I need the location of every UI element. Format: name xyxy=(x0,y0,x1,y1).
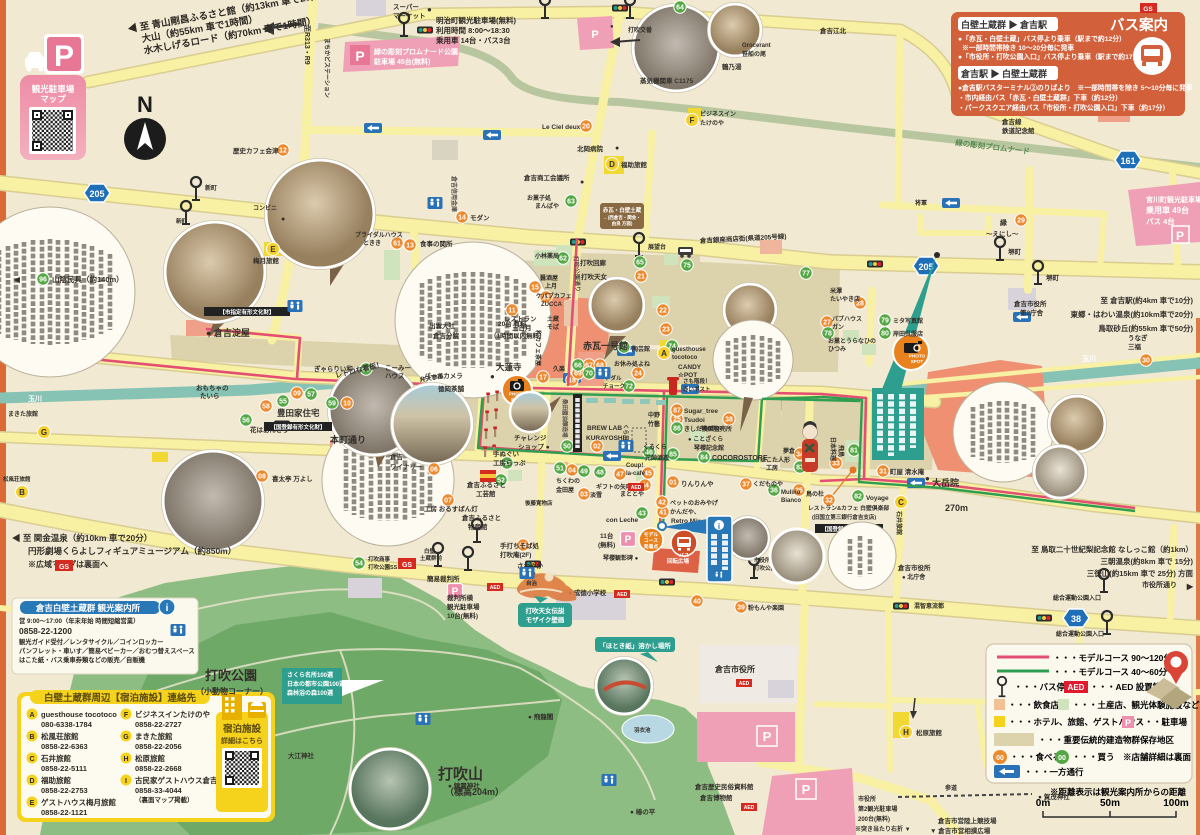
svg-text:喜太亭 万よし: 喜太亭 万よし xyxy=(272,474,313,483)
svg-text:日本の都市公園100選: 日本の都市公園100選 xyxy=(287,680,345,688)
svg-text:0858-22-1200: 0858-22-1200 xyxy=(19,626,72,636)
svg-text:14: 14 xyxy=(458,215,466,222)
svg-text:15: 15 xyxy=(531,285,539,292)
svg-text:11台: 11台 xyxy=(600,531,614,540)
svg-text:古民家ゲストハウス倉吉: 古民家ゲストハウス倉吉 xyxy=(135,775,218,785)
svg-text:醤酒屋: 醤酒屋 xyxy=(540,274,558,282)
svg-text:福助旅館: 福助旅館 xyxy=(620,160,648,169)
svg-text:←(西倉吉・関金・: ←(西倉吉・関金・ xyxy=(603,214,641,221)
svg-text:倉吉市営陸上競技場: 倉吉市営陸上競技場 xyxy=(937,816,997,825)
svg-text:陶芸館: 陶芸館 xyxy=(632,345,650,353)
svg-text:(旧国立第三銀行倉吉支店): (旧国立第三銀行倉吉支店) xyxy=(812,513,876,521)
svg-text:竹藝: 竹藝 xyxy=(647,420,660,428)
svg-text:石井旅館: 石井旅館 xyxy=(40,753,71,763)
svg-text:0858-22-2056: 0858-22-2056 xyxy=(135,742,182,751)
svg-text:10台(無料): 10台(無料) xyxy=(447,611,478,620)
svg-text:33: 33 xyxy=(832,461,840,468)
svg-text:38: 38 xyxy=(725,417,733,424)
svg-text:倉吉江北: 倉吉江北 xyxy=(819,26,847,35)
svg-text:Tsudoi: Tsudoi xyxy=(684,417,705,424)
svg-text:01: 01 xyxy=(669,480,677,487)
svg-text:チョーク: チョーク xyxy=(603,382,625,390)
svg-text:米澤: 米澤 xyxy=(830,287,842,295)
svg-text:スーパー: スーパー xyxy=(393,2,419,11)
svg-text:将軍: 将軍 xyxy=(915,199,927,207)
svg-text:Voyage: Voyage xyxy=(866,495,889,502)
svg-text:57: 57 xyxy=(307,392,315,399)
svg-text:00: 00 xyxy=(996,755,1004,762)
svg-text:乗用車 14台・バス3台: 乗用車 14台・バス3台 xyxy=(436,35,511,45)
svg-text:●: ● xyxy=(580,179,584,186)
svg-text:75: 75 xyxy=(683,263,691,270)
svg-text:● 鎮霊神社: ● 鎮霊神社 xyxy=(448,781,480,790)
svg-text:20: 20 xyxy=(582,124,590,131)
svg-text:簡易裁判所: 簡易裁判所 xyxy=(426,574,460,583)
svg-text:51: 51 xyxy=(556,466,564,473)
svg-text:43: 43 xyxy=(638,511,646,518)
svg-text:13: 13 xyxy=(406,243,414,250)
svg-text:日本料理: 日本料理 xyxy=(829,437,837,461)
svg-text:100m: 100m xyxy=(1163,798,1189,809)
svg-text:96: 96 xyxy=(39,277,47,284)
svg-text:至 倉吉駅(約4km 車で10分): 至 倉吉駅(約4km 車で10分) xyxy=(1100,295,1193,305)
svg-text:080-6338-1784: 080-6338-1784 xyxy=(41,720,93,729)
svg-text:AED: AED xyxy=(739,681,750,687)
svg-text:11: 11 xyxy=(508,308,516,315)
svg-text:展望台: 展望台 xyxy=(648,243,666,251)
svg-text:笹船の尾: 笹船の尾 xyxy=(741,50,766,58)
svg-text:P: P xyxy=(802,782,811,797)
svg-text:47: 47 xyxy=(616,472,624,479)
svg-text:29: 29 xyxy=(1017,218,1025,225)
svg-text:かんだや、: かんだや、 xyxy=(670,508,700,516)
svg-text:04: 04 xyxy=(568,468,576,475)
svg-text:0858-22-2727: 0858-22-2727 xyxy=(135,720,182,729)
svg-text:D: D xyxy=(29,778,34,785)
svg-text:82: 82 xyxy=(854,494,862,501)
svg-text:AED: AED xyxy=(490,585,501,591)
svg-text:Bianco: Bianco xyxy=(781,498,801,504)
svg-text:本町通り: 本町通り xyxy=(330,434,366,445)
svg-text:D: D xyxy=(609,160,615,169)
svg-text:ハウス: ハウス xyxy=(385,372,405,380)
svg-text:62: 62 xyxy=(559,256,567,263)
svg-text:（小動物コーナー）: （小動物コーナー） xyxy=(196,686,268,696)
svg-text:23: 23 xyxy=(662,327,670,334)
svg-text:● 椿の平: ● 椿の平 xyxy=(630,807,656,816)
svg-text:レストラン&カフェ 白壁倶楽部: レストラン&カフェ 白壁倶楽部 xyxy=(808,504,889,512)
svg-text:「ほとき紙」溶かし場所: 「ほとき紙」溶かし場所 xyxy=(599,641,671,650)
svg-text:おもちゃの: おもちゃの xyxy=(196,383,229,392)
svg-text:バス 4台: バス 4台 xyxy=(1146,216,1175,226)
svg-text:41: 41 xyxy=(659,510,667,517)
svg-text:パンフレット・車いす／簡易ベビーカー／おむつ替えスペース: パンフレット・車いす／簡易ベビーカー／おむつ替えスペース xyxy=(19,646,195,655)
svg-text:06: 06 xyxy=(430,467,438,474)
svg-text:70: 70 xyxy=(585,371,593,378)
svg-text:H: H xyxy=(123,756,128,763)
svg-text:第2庁舎: 第2庁舎 xyxy=(1020,308,1044,317)
svg-text:※距離表示は観光案内所からの距離: ※距離表示は観光案内所からの距離 xyxy=(1050,787,1187,797)
svg-text:たいら: たいら xyxy=(200,392,220,400)
svg-text:倉吉市役所: 倉吉市役所 xyxy=(714,664,755,674)
svg-text:22: 22 xyxy=(659,308,667,315)
svg-text:第2観光駐車場: 第2観光駐車場 xyxy=(857,805,897,813)
svg-text:78: 78 xyxy=(824,331,832,338)
svg-text:久楽: 久楽 xyxy=(553,365,566,373)
svg-text:山陰民具（約140m）: 山陰民具（約140m） xyxy=(52,274,124,284)
svg-text:i: i xyxy=(718,522,720,531)
svg-text:三朝温泉(約8km 車で 15分): 三朝温泉(約8km 車で 15分) xyxy=(1100,556,1193,566)
svg-text:24: 24 xyxy=(634,371,642,378)
svg-text:10: 10 xyxy=(343,401,351,408)
svg-text:86: 86 xyxy=(673,426,681,433)
svg-text:歴史カフェ会津: 歴史カフェ会津 xyxy=(233,146,279,155)
svg-text:54: 54 xyxy=(355,561,363,568)
svg-text:コース: コース xyxy=(644,538,658,544)
svg-text:上月: 上月 xyxy=(545,282,557,290)
svg-text:58: 58 xyxy=(262,404,270,411)
svg-text:まきた旅館: まきた旅館 xyxy=(135,731,173,741)
svg-text:Coup!: Coup! xyxy=(626,463,643,469)
svg-text:CANDY: CANDY xyxy=(678,364,702,371)
svg-text:くだものや: くだものや xyxy=(753,480,783,488)
svg-text:たけのや: たけのや xyxy=(700,119,724,127)
svg-text:87: 87 xyxy=(673,408,681,415)
svg-text:和カフェ茶屋: 和カフェ茶屋 xyxy=(534,329,542,366)
svg-text:まちかどステーション: まちかどステーション xyxy=(323,38,331,98)
svg-text:羽衣池: 羽衣池 xyxy=(634,726,651,734)
svg-text:はこた人形: はこた人形 xyxy=(760,456,790,464)
svg-text:36: 36 xyxy=(770,488,778,495)
svg-text:・・・バス停: ・・・バス停 xyxy=(1014,682,1066,692)
svg-text:●: ● xyxy=(615,145,619,152)
svg-text:発着点: 発着点 xyxy=(643,543,659,550)
svg-text:金田屋: 金田屋 xyxy=(555,486,574,494)
svg-text:バス案内: バス案内 xyxy=(1110,16,1168,34)
svg-text:ひつみ: ひつみ xyxy=(828,346,846,353)
svg-text:粉もんや楽園: 粉もんや楽園 xyxy=(748,604,784,612)
svg-text:21: 21 xyxy=(637,274,645,281)
svg-text:観光ガイド受付／レンタサイクル／コインロッカー: 観光ガイド受付／レンタサイクル／コインロッカー xyxy=(19,637,164,646)
svg-text:倉吉線: 倉吉線 xyxy=(1001,117,1022,126)
svg-text:09: 09 xyxy=(293,391,301,398)
svg-text:倉吉白壁土蔵群 観光案内所: 倉吉白壁土蔵群 観光案内所 xyxy=(35,603,141,613)
svg-text:まきた旅館: まきた旅館 xyxy=(8,410,38,418)
svg-text:鳥取砂丘(約55km 車で50分): 鳥取砂丘(約55km 車で50分) xyxy=(1098,323,1193,333)
svg-text:A: A xyxy=(29,712,34,719)
svg-text:GS: GS xyxy=(59,564,69,571)
svg-text:打吹商事: 打吹商事 xyxy=(368,555,391,563)
svg-text:町屋 清水庵: 町屋 清水庵 xyxy=(890,467,925,476)
svg-text:松風荘旅館: 松風荘旅館 xyxy=(41,731,79,741)
svg-text:BREW LAB: BREW LAB xyxy=(587,425,622,432)
svg-text:i: i xyxy=(166,603,169,614)
svg-text:バス: バス xyxy=(679,552,689,559)
svg-text:●: ● xyxy=(281,216,285,223)
svg-text:●「市役所・打吹公園入口」バス停より乗車（駅まで約17分）: ●「市役所・打吹公園入口」バス停より乗車（駅まで約17分） xyxy=(958,52,1146,61)
svg-text:64: 64 xyxy=(676,5,684,12)
svg-text:三徳山(約15km 車で 25分) 方面: 三徳山(約15km 車で 25分) 方面 xyxy=(1087,568,1194,578)
svg-text:G: G xyxy=(41,428,47,437)
svg-text:打吹山: 打吹山 xyxy=(438,765,483,783)
svg-text:新町: 新町 xyxy=(205,184,217,192)
svg-text:59: 59 xyxy=(328,401,336,408)
svg-text:ショップ ●: ショップ ● xyxy=(518,442,550,451)
svg-text:由良 方面): 由良 方面) xyxy=(612,220,633,227)
svg-text:鉄道記念館: 鉄道記念館 xyxy=(1002,126,1035,135)
svg-text:宮川町観光駐車場(無料): 宮川町観光駐車場(無料) xyxy=(1146,195,1200,204)
svg-text:◀ 至 関金温泉（約10km 車で20分）: ◀ 至 関金温泉（約10km 車で20分） xyxy=(12,533,152,543)
svg-text:AED: AED xyxy=(744,805,755,811)
svg-text:PHOTO: PHOTO xyxy=(909,354,926,359)
svg-text:中野: 中野 xyxy=(648,411,660,419)
svg-text:工芸館: 工芸館 xyxy=(476,489,496,498)
svg-text:北岡病院: 北岡病院 xyxy=(577,144,604,153)
svg-text:手ぬぐい: 手ぬぐい xyxy=(493,449,520,458)
svg-text:N: N xyxy=(137,92,153,117)
svg-text:ペットのおみやげ: ペットのおみやげ xyxy=(670,499,719,507)
svg-text:赤瓦一号館: 赤瓦一号館 xyxy=(583,340,628,351)
svg-text:打吹公園: 打吹公園 xyxy=(205,668,257,683)
svg-text:松風荘旅館: 松風荘旅館 xyxy=(3,475,31,483)
svg-text:きしだ農園直売所: きしだ農園直売所 xyxy=(684,425,732,433)
svg-text:三福: 三福 xyxy=(1128,342,1142,351)
svg-text:Le Ciel deux: Le Ciel deux xyxy=(542,124,581,131)
svg-text:堺町: 堺町 xyxy=(1008,247,1022,256)
svg-text:倉吉ふるさと: 倉吉ふるさと xyxy=(461,513,501,522)
svg-text:H: H xyxy=(903,728,909,737)
svg-text:観光駐車場: 観光駐車場 xyxy=(32,84,75,94)
svg-text:新町: 新町 xyxy=(176,217,188,225)
svg-text:guesthouse tocotoco: guesthouse tocotoco xyxy=(41,710,117,719)
svg-text:0858-22-6363: 0858-22-6363 xyxy=(41,742,88,751)
svg-text:●倉吉駅バスターミナル②のりばより ※一部時間帯を除き 5〜: ●倉吉駅バスターミナル②のりばより ※一部時間帯を除き 5〜10分毎に発車 xyxy=(958,83,1193,92)
svg-text:02: 02 xyxy=(593,444,601,451)
svg-text:08: 08 xyxy=(258,474,266,481)
svg-text:倉吉市役所: 倉吉市役所 xyxy=(1013,299,1047,308)
svg-text:さも階段！: さも階段！ xyxy=(683,377,711,385)
svg-text:49: 49 xyxy=(580,469,588,476)
svg-text:総合運動公園入口: 総合運動公園入口 xyxy=(1053,594,1101,602)
svg-text:17: 17 xyxy=(539,375,547,382)
svg-text:※一部時間帯除き 10〜20分毎に発車: ※一部時間帯除き 10〜20分毎に発車 xyxy=(962,43,1074,52)
svg-text:I: I xyxy=(125,778,127,785)
svg-text:● ことざくら: ● ことざくら xyxy=(688,435,723,443)
svg-text:琴櫻観彰碑 ●: 琴櫻観彰碑 ● xyxy=(602,554,639,562)
svg-text:夢倉: 夢倉 xyxy=(783,447,796,455)
svg-text:モデル: モデル xyxy=(644,531,659,538)
svg-text:G: G xyxy=(123,734,129,741)
svg-text:ミタ写真館: ミタ写真館 xyxy=(893,317,923,325)
svg-text:まととや: まととや xyxy=(620,490,644,498)
svg-text:0858-22-2753: 0858-22-2753 xyxy=(41,786,88,795)
svg-text:B: B xyxy=(29,734,34,741)
svg-text:48: 48 xyxy=(596,470,604,477)
svg-text:回転広場: 回転広場 xyxy=(667,557,690,565)
svg-text:大岳院: 大岳院 xyxy=(932,477,959,488)
svg-text:駐車場 45台(無料): 駐車場 45台(無料) xyxy=(374,57,430,66)
svg-text:85: 85 xyxy=(669,452,677,459)
svg-text:ゲストハウス梅月旅館: ゲストハウス梅月旅館 xyxy=(41,797,116,807)
svg-text:la-cafe: la-cafe xyxy=(626,471,646,477)
svg-text:倉吉商工会議所: 倉吉商工会議所 xyxy=(523,173,570,182)
svg-text:後藤寛物店: 後藤寛物店 xyxy=(525,499,553,507)
svg-text:白壁土蔵群 ▶ 倉吉駅: 白壁土蔵群 ▶ 倉吉駅 xyxy=(961,19,1048,30)
svg-text:Sugar_tree: Sugar_tree xyxy=(684,408,718,415)
svg-text:鶴乃湯: 鶴乃湯 xyxy=(722,62,742,71)
svg-text:マップ: マップ xyxy=(40,94,66,104)
svg-text:● 北庁舎: ● 北庁舎 xyxy=(902,573,926,581)
svg-text:ちくわの: ちくわの xyxy=(556,477,580,485)
svg-text:0858-33-4044: 0858-33-4044 xyxy=(135,786,183,795)
svg-text:淡雪: 淡雪 xyxy=(590,491,602,499)
svg-text:はこた紙・バス乗車券類などの販売／自販機: はこた紙・バス乗車券類などの販売／自販機 xyxy=(19,655,146,664)
svg-text:松原旅館: 松原旅館 xyxy=(916,728,943,737)
svg-text:40: 40 xyxy=(693,599,701,606)
svg-text:参道: 参道 xyxy=(944,784,957,792)
svg-text:30: 30 xyxy=(1142,358,1150,365)
svg-text:・・・重要伝統的建造物群保存地区: ・・・重要伝統的建造物群保存地区 xyxy=(1038,735,1175,745)
svg-text:まんばや: まんばや xyxy=(535,202,559,210)
svg-text:tocotoco: tocotoco xyxy=(672,355,698,361)
svg-text:徳岡茶舗: 徳岡茶舗 xyxy=(437,384,465,393)
svg-text:00: 00 xyxy=(1058,755,1066,762)
svg-text:ワイナリー: ワイナリー xyxy=(390,463,422,471)
svg-text:うなぎ: うなぎ xyxy=(1128,333,1148,342)
svg-text:200台(無料): 200台(無料) xyxy=(858,815,890,823)
svg-text:77: 77 xyxy=(802,271,810,278)
svg-text:20台 有料: 20台 有料 xyxy=(498,319,527,328)
svg-text:E: E xyxy=(30,800,35,807)
svg-text:C: C xyxy=(29,756,34,763)
svg-text:con Leche: con Leche xyxy=(606,517,639,524)
svg-text:市役所通り: 市役所通り xyxy=(1142,580,1177,589)
svg-text:マーケット: マーケット xyxy=(393,12,426,20)
svg-text:打吹公園SS: 打吹公園SS xyxy=(368,563,398,571)
svg-text:モザイク壁画: モザイク壁画 xyxy=(526,615,565,624)
svg-text:大江神社: 大江神社 xyxy=(288,751,315,760)
svg-text:たいやき店: たいやき店 xyxy=(830,295,860,303)
svg-text:ビジネスイン: ビジネスイン xyxy=(700,110,736,118)
svg-text:コンビニ: コンビニ xyxy=(253,204,277,212)
svg-text:りんりんや: りんりんや xyxy=(681,479,714,488)
svg-text:東郷・はわい温泉(約10km車で20分): 東郷・はわい温泉(約10km車で20分) xyxy=(1070,309,1193,319)
svg-text:玉川: 玉川 xyxy=(28,395,42,403)
svg-text:さくら名所100選: さくら名所100選 xyxy=(287,671,333,679)
svg-text:工房: 工房 xyxy=(766,464,778,472)
svg-text:▶: ▶ xyxy=(1186,582,1194,591)
svg-text:梅月旅館: 梅月旅館 xyxy=(253,256,280,265)
svg-text:倉吉駅 ▶ 白壁土蔵群: 倉吉駅 ▶ 白壁土蔵群 xyxy=(960,68,1047,79)
svg-text:0858-22-5111: 0858-22-5111 xyxy=(41,764,87,773)
svg-text:ビジネスインたけのや: ビジネスインたけのや xyxy=(135,709,210,719)
svg-text:乗用車 49台: 乗用車 49台 xyxy=(1146,205,1189,215)
svg-text:● 倉吉淀屋: ● 倉吉淀屋 xyxy=(206,327,250,338)
svg-text:打吹天女: 打吹天女 xyxy=(581,272,608,281)
svg-text:玉川: 玉川 xyxy=(1082,355,1096,363)
svg-text:guesthouse: guesthouse xyxy=(672,347,706,353)
svg-text:AED: AED xyxy=(1068,683,1085,692)
svg-text:打吹天女伝説: 打吹天女伝説 xyxy=(526,606,566,615)
svg-text:31: 31 xyxy=(879,469,887,476)
svg-text:Grocerant: Grocerant xyxy=(742,43,771,49)
svg-text:堺町: 堺町 xyxy=(1046,273,1060,282)
svg-text:E: E xyxy=(270,245,276,254)
svg-text:裁判所横: 裁判所横 xyxy=(447,593,474,602)
svg-text:ときき: ときき xyxy=(363,239,381,247)
svg-text:小林薬局: 小林薬局 xyxy=(534,252,559,260)
svg-text:円形劇場くらよしフィギュアミュージアム（約850m）: 円形劇場くらよしフィギュアミュージアム（約850m） xyxy=(28,546,236,556)
svg-text:50: 50 xyxy=(563,444,571,451)
svg-text:ケバブカフェ: ケバブカフェ xyxy=(536,292,572,300)
svg-text:0858-22-2668: 0858-22-2668 xyxy=(135,764,182,773)
svg-text:72: 72 xyxy=(625,384,633,391)
svg-text:●: ● xyxy=(490,372,495,381)
svg-text:ガン: ガン xyxy=(832,323,844,331)
svg-text:P: P xyxy=(1176,229,1184,243)
svg-text:倉吉信用金庫: 倉吉信用金庫 xyxy=(450,175,458,212)
svg-text:倉吉歴史民俗資料館: 倉吉歴史民俗資料館 xyxy=(694,782,754,791)
svg-text:宿泊施設: 宿泊施設 xyxy=(223,723,262,735)
svg-text:AED: AED xyxy=(617,592,628,598)
svg-text:出雲大社: 出雲大社 xyxy=(429,321,456,330)
svg-text:P: P xyxy=(591,29,598,41)
svg-text:お菓子処: お菓子処 xyxy=(527,194,552,202)
svg-text:42: 42 xyxy=(658,500,666,507)
svg-text:物産館: 物産館 xyxy=(468,522,488,531)
svg-text:観光駐車場: 観光駐車場 xyxy=(447,602,480,611)
svg-text:大蓮寺: 大蓮寺 xyxy=(496,362,522,372)
svg-text:※突き当たり右折 ▼: ※突き当たり右折 ▼ xyxy=(855,825,911,833)
svg-text:利用時間 8:00〜18:30: 利用時間 8:00〜18:30 xyxy=(435,25,510,35)
svg-text:自治: 自治 xyxy=(526,579,538,587)
svg-text:打吹庵(2F): 打吹庵(2F) xyxy=(500,550,531,559)
svg-text:0858-22-1121: 0858-22-1121 xyxy=(41,808,87,817)
svg-text:松原旅館: 松原旅館 xyxy=(135,753,165,763)
svg-text:【市指定有形文化財】: 【市指定有形文化財】 xyxy=(219,308,274,316)
svg-text:GS: GS xyxy=(402,562,412,569)
svg-text:● 飛龍閣: ● 飛龍閣 xyxy=(528,712,554,721)
svg-text:●: ● xyxy=(610,24,614,30)
svg-text:ギフトの矢吹: ギフトの矢吹 xyxy=(596,483,632,491)
svg-text:・・・駐車場: ・・・駐車場 xyxy=(1136,717,1188,727)
svg-text:（裏面マップ掲載）: （裏面マップ掲載） xyxy=(135,795,194,804)
svg-text:蒸気機関車 C1175: 蒸気機関車 C1175 xyxy=(640,76,693,85)
svg-text:〜えにし〜: 〜えにし〜 xyxy=(986,229,1019,238)
svg-text:45: 45 xyxy=(644,471,652,478)
svg-text:・・・モデルコース 90〜120分: ・・・モデルコース 90〜120分 xyxy=(1053,653,1172,663)
svg-text:27: 27 xyxy=(823,320,831,327)
svg-text:GS: GS xyxy=(1143,6,1153,13)
svg-text:55: 55 xyxy=(279,399,287,406)
svg-text:工房 おるすばん灯: 工房 おるすばん灯 xyxy=(424,504,478,513)
svg-text:C: C xyxy=(898,498,904,507)
svg-text:AED: AED xyxy=(631,485,642,491)
svg-text:琴櫻記念館: 琴櫻記念館 xyxy=(693,444,724,452)
svg-text:F: F xyxy=(690,116,695,125)
svg-text:79: 79 xyxy=(881,318,889,325)
svg-text:くるくら: くるくら xyxy=(643,444,667,451)
svg-text:03: 03 xyxy=(580,492,588,499)
svg-text:打吹交番: 打吹交番 xyxy=(628,26,653,34)
svg-text:・パークスクエア経由バス「市役所・打吹公園入口」下車（約17: ・パークスクエア経由バス「市役所・打吹公園入口」下車（約17分） xyxy=(958,103,1169,112)
svg-text:P: P xyxy=(1125,718,1131,728)
svg-text:工房らっぷ: 工房らっぷ xyxy=(493,458,526,467)
svg-text:プライダルハウス: プライダルハウス xyxy=(355,231,403,239)
svg-text:岸田呉服店: 岸田呉服店 xyxy=(893,330,923,338)
svg-text:B: B xyxy=(19,488,25,497)
svg-text:豊田家住宅: 豊田家住宅 xyxy=(277,408,320,418)
